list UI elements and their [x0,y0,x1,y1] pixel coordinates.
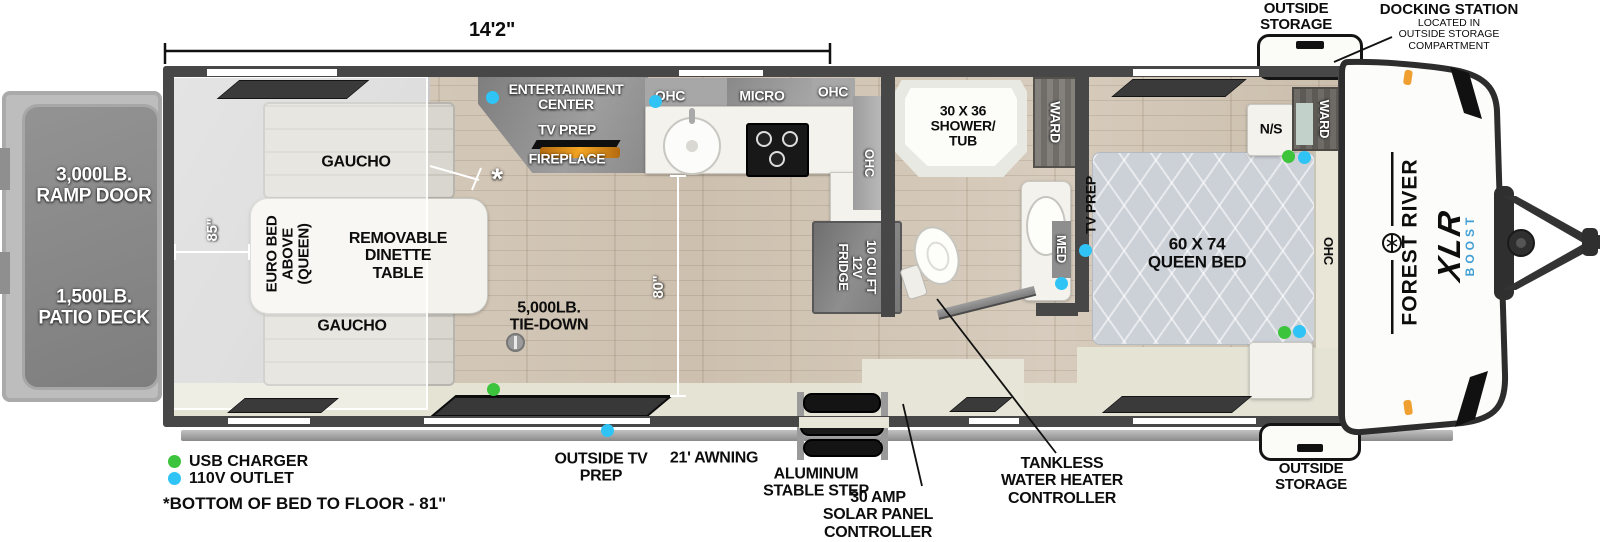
docking-station-sub: LOCATED IN OUTSIDE STORAGE COMPARTMENT [1378,18,1520,53]
med-label: MED [1054,235,1068,263]
usb-charger-dot [1278,326,1291,339]
tankless-heater-label: TANKLESS WATER HEATER CONTROLLER [1001,455,1123,507]
110v-outlet-dot [1293,325,1306,338]
solar-controller-label: 30 AMP SOLAR PANEL CONTROLLER [823,489,933,541]
outside-storage-label-top: OUTSIDE STORAGE [1260,1,1332,33]
nightstand-label: N/S [1260,121,1282,136]
wall-window-stripe [228,418,310,424]
gaucho-label-bottom: GAUCHO [317,317,386,334]
110v-outlet-dot [1298,151,1311,164]
wall-window-stripe [1133,69,1259,76]
hitch-ball-mount [1595,235,1600,249]
110v-outlet-dot [1055,277,1068,290]
awning-label: 21' AWNING [670,449,758,466]
ohc-label-side: OHC [862,149,876,177]
110v-outlet-dot [486,91,499,104]
legend-outlet-label: 110V OUTLET [189,470,294,488]
bath-ward-label: WARD [1047,101,1062,143]
wall-window-stripe [424,418,650,424]
storage-handle-icon [1297,444,1323,452]
footnote-label: *BOTTOM OF BED TO FLOOR - 81" [163,494,446,514]
ramp-door-label: 3,000LB. RAMP DOOR [36,165,151,206]
gaucho-label-top: GAUCHO [321,153,390,170]
docking-station-title: DOCKING STATION [1378,2,1520,18]
micro-label: MICRO [739,88,784,103]
wall-window-stripe [969,418,1019,424]
shower-label: 30 X 36 SHOWER/ TUB [931,103,996,148]
ramp-hinge [0,148,10,190]
110v-outlet-dot [168,472,181,485]
wall-window-stripe [679,70,763,76]
asterisk-marker: * [491,164,502,196]
outside-storage-label-bottom: OUTSIDE STORAGE [1275,461,1347,493]
queen-bed-label: 60 X 74 QUEEN BED [1148,236,1246,273]
dimension-overall: 14'2" [469,20,515,42]
ramp-hinge [0,252,10,294]
fridge-label: 10 CU FT 12V FRIDGE [836,240,878,294]
legend-usb-label: USB CHARGER [189,453,308,471]
euro-bed-label: EURO BED ABOVE (QUEEN) [265,216,314,293]
usb-charger-dot [1282,150,1295,163]
floorplan-canvas: 3,000LB. RAMP DOOR 1,500LB. PATIO DECK [0,0,1600,542]
wall-window-stripe [207,69,337,76]
110v-outlet-dot [601,424,614,437]
brand-xlr: XLR [1435,207,1464,283]
bed-ohc-label: OHC [1321,237,1335,265]
logo-wing-line [1391,260,1394,334]
patio-deck-label: 1,500LB. PATIO DECK [38,287,149,328]
fireplace-label: FIREPLACE [529,151,606,166]
dimension-kitchen-depth: 80" [651,276,667,299]
bedroom-ward-label: WARD [1317,100,1331,139]
brand-xlr-boost: XLR BOOST [1401,185,1511,305]
tv-prep-label: TV PREP [538,122,596,137]
entry-step [803,439,883,457]
usb-charger-dot [168,455,181,468]
usb-charger-dot [487,383,500,396]
entry-door-opening [799,417,889,428]
dimension-garage-width: 85" [205,219,221,242]
dinette-label: REMOVABLE DINETTE TABLE [349,230,447,282]
ohc-label-right: OHC [818,84,848,99]
storage-handle-icon [1296,41,1324,49]
tie-down-label: 5,000LB. TIE-DOWN [510,300,588,335]
110v-outlet-dot [1079,244,1092,257]
bedroom-tv-prep-label: TV PREP [1083,176,1098,234]
entertainment-label: ENTERTAINMENT CENTER [509,82,624,112]
patio-deck-surface [22,104,160,390]
outside-tv-prep-label: OUTSIDE TV PREP [554,451,647,486]
docking-station-callout: DOCKING STATION LOCATED IN OUTSIDE STORA… [1378,2,1520,52]
110v-outlet-dot [649,95,662,108]
wall-window-stripe [1133,418,1256,424]
logo-wing-line [1391,152,1394,226]
